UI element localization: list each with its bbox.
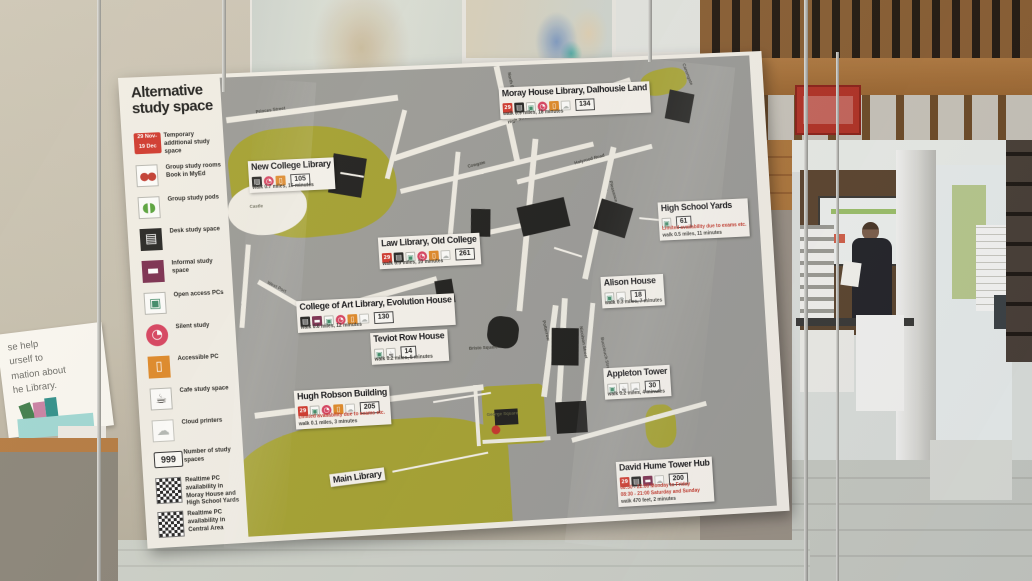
hanging-rod bbox=[804, 0, 808, 581]
legend-item-cafe-study: ☕ Cafe study space bbox=[138, 384, 241, 417]
map-label-alison-house: Alison House ▣☁18 walk 0.3 miles, 7 minu… bbox=[600, 274, 665, 309]
qr-code-icon bbox=[157, 511, 184, 538]
legend-label: Number of study spaces bbox=[183, 447, 239, 466]
legend-label: Temporary additional study space bbox=[163, 131, 220, 157]
map-label-hugh-robson-building: Hugh Robson Building 29▣◔▯☁205 Limited a… bbox=[294, 386, 392, 430]
legend-item-desk-study: ▤ Desk study space bbox=[128, 225, 231, 258]
hanging-rod bbox=[222, 0, 226, 92]
legend-label: Cafe study space bbox=[179, 385, 235, 396]
map-label-moray-house-library: Moray House Library, Dalhousie Land 29▤▣… bbox=[499, 81, 652, 119]
castle-label: Castle bbox=[249, 203, 263, 209]
count-badge: 130 bbox=[374, 311, 394, 324]
road bbox=[571, 401, 707, 443]
map-label-high-school-yards: High School Yards ▣61 Limited availabili… bbox=[658, 198, 750, 241]
date-badge-line1: 29 Nov- bbox=[137, 133, 157, 140]
hanging-rod bbox=[648, 0, 652, 62]
road bbox=[385, 109, 407, 179]
number-badge: 999 bbox=[154, 451, 184, 469]
map-label-college-of-art-library: College of Art Library, Evolution House … bbox=[296, 293, 456, 333]
legend-label: Silent study bbox=[175, 321, 231, 332]
legend-item-qr-central: Realtime PC availability in Central Area bbox=[145, 507, 248, 543]
legend-item-temporary-space: 29 Nov- 19 Dec Temporary additional stud… bbox=[122, 129, 225, 161]
open-access-pc-icon: ▣ bbox=[144, 292, 167, 315]
legend-item-qr-moray: Realtime PC availability in Moray House … bbox=[143, 473, 246, 509]
building bbox=[555, 401, 588, 434]
floor bbox=[110, 540, 810, 581]
map-label-teviot-row-house: Teviot Row House ▣☕14 walk 0.2 miles, 5 … bbox=[370, 329, 449, 365]
legend-label: Group study rooms Book in MyEd bbox=[165, 162, 222, 180]
counter-unit bbox=[856, 315, 904, 411]
desk-study-icon: ▤ bbox=[139, 228, 162, 251]
silent-study-icon: ◔ bbox=[146, 324, 169, 347]
legend-item-accessible-pc: ▯ Accessible PC bbox=[136, 352, 239, 385]
legend-label: Desk study space bbox=[169, 226, 225, 236]
road bbox=[226, 95, 398, 124]
hanging-rod bbox=[97, 0, 101, 581]
group-study-pods-icon: ◖◗ bbox=[137, 196, 160, 219]
legend-label: Group study pods bbox=[167, 194, 223, 204]
person bbox=[850, 222, 896, 322]
leader-line bbox=[554, 247, 582, 258]
building bbox=[593, 198, 633, 238]
date-badge-line2: 19 Dec bbox=[139, 143, 157, 150]
map-label-law-library-old-college: Law Library, Old College 29▤▣◔▯☁261 walk… bbox=[378, 233, 481, 270]
legend-item-group-study-rooms: ●● Group study rooms Book in MyEd bbox=[124, 161, 227, 194]
building bbox=[551, 328, 578, 366]
bristo-square-label: Bristo Square bbox=[469, 344, 498, 350]
map-label-appleton-tower: Appleton Tower ▣☕☁30 walk 0.2 miles, 4 m… bbox=[603, 365, 671, 400]
date-badge-icon: 29 Nov- 19 Dec bbox=[133, 132, 161, 154]
legend-label: Realtime PC availability in Moray House … bbox=[185, 474, 242, 508]
city-map: Princes Street North Bridge High Street … bbox=[220, 55, 777, 536]
street-label: Pleasance bbox=[608, 180, 618, 202]
legend-item-informal-study: ▬ Informal study space bbox=[130, 257, 233, 290]
group-study-rooms-icon: ●● bbox=[135, 164, 158, 187]
building bbox=[517, 197, 571, 237]
legend-label: Realtime PC availability in Central Area bbox=[187, 508, 244, 534]
hanging-rod bbox=[836, 52, 839, 581]
counter-unit bbox=[800, 330, 854, 392]
floor-highlight bbox=[930, 440, 1012, 500]
poster-title: Alternative study space bbox=[130, 81, 227, 116]
legend-item-group-study-pods: ◖◗ Group study pods bbox=[126, 193, 229, 226]
accessible-pc-icon: ▯ bbox=[148, 356, 171, 379]
road bbox=[239, 244, 250, 328]
qr-code-icon bbox=[155, 477, 182, 504]
map-label-new-college-library: New College Library ▤◔▯105 walk 0.7 mile… bbox=[248, 157, 336, 193]
informal-study-icon: ▬ bbox=[142, 260, 165, 283]
legend-label: Informal study space bbox=[171, 258, 228, 276]
legend-label: Open access PCs bbox=[173, 290, 229, 301]
legend-label: Cloud printers bbox=[181, 417, 237, 428]
glass-art-panel bbox=[466, 0, 612, 58]
library-interior-photo: se help urself to mation about he Librar… bbox=[0, 0, 1032, 581]
cafe-study-icon: ☕ bbox=[150, 387, 173, 410]
leader-line bbox=[639, 217, 660, 221]
legend-label: Accessible PC bbox=[177, 353, 233, 364]
person-paper bbox=[840, 261, 861, 287]
count-badge: 134 bbox=[575, 99, 595, 112]
bookshelf bbox=[1006, 140, 1032, 362]
count-badge: 261 bbox=[455, 248, 475, 261]
study-space-map-poster: Alternative study space 29 Nov- 19 Dec T… bbox=[118, 51, 790, 549]
wood-slats bbox=[700, 0, 1032, 58]
glass-art-panel bbox=[616, 0, 702, 52]
legend-item-open-access-pcs: ▣ Open access PCs bbox=[132, 288, 235, 321]
legend-item-silent-study: ◔ Silent study bbox=[134, 320, 237, 353]
building bbox=[665, 89, 695, 123]
map-label-david-hume-tower-hub: David Hume Tower Hub 29▤▬☁200 08:30 - 22… bbox=[616, 457, 715, 508]
cloud-printers-icon: ☁ bbox=[152, 419, 175, 442]
legend-item-cloud-printers: ☁ Cloud printers bbox=[140, 416, 243, 449]
poster-title-line2: study space bbox=[131, 97, 213, 117]
